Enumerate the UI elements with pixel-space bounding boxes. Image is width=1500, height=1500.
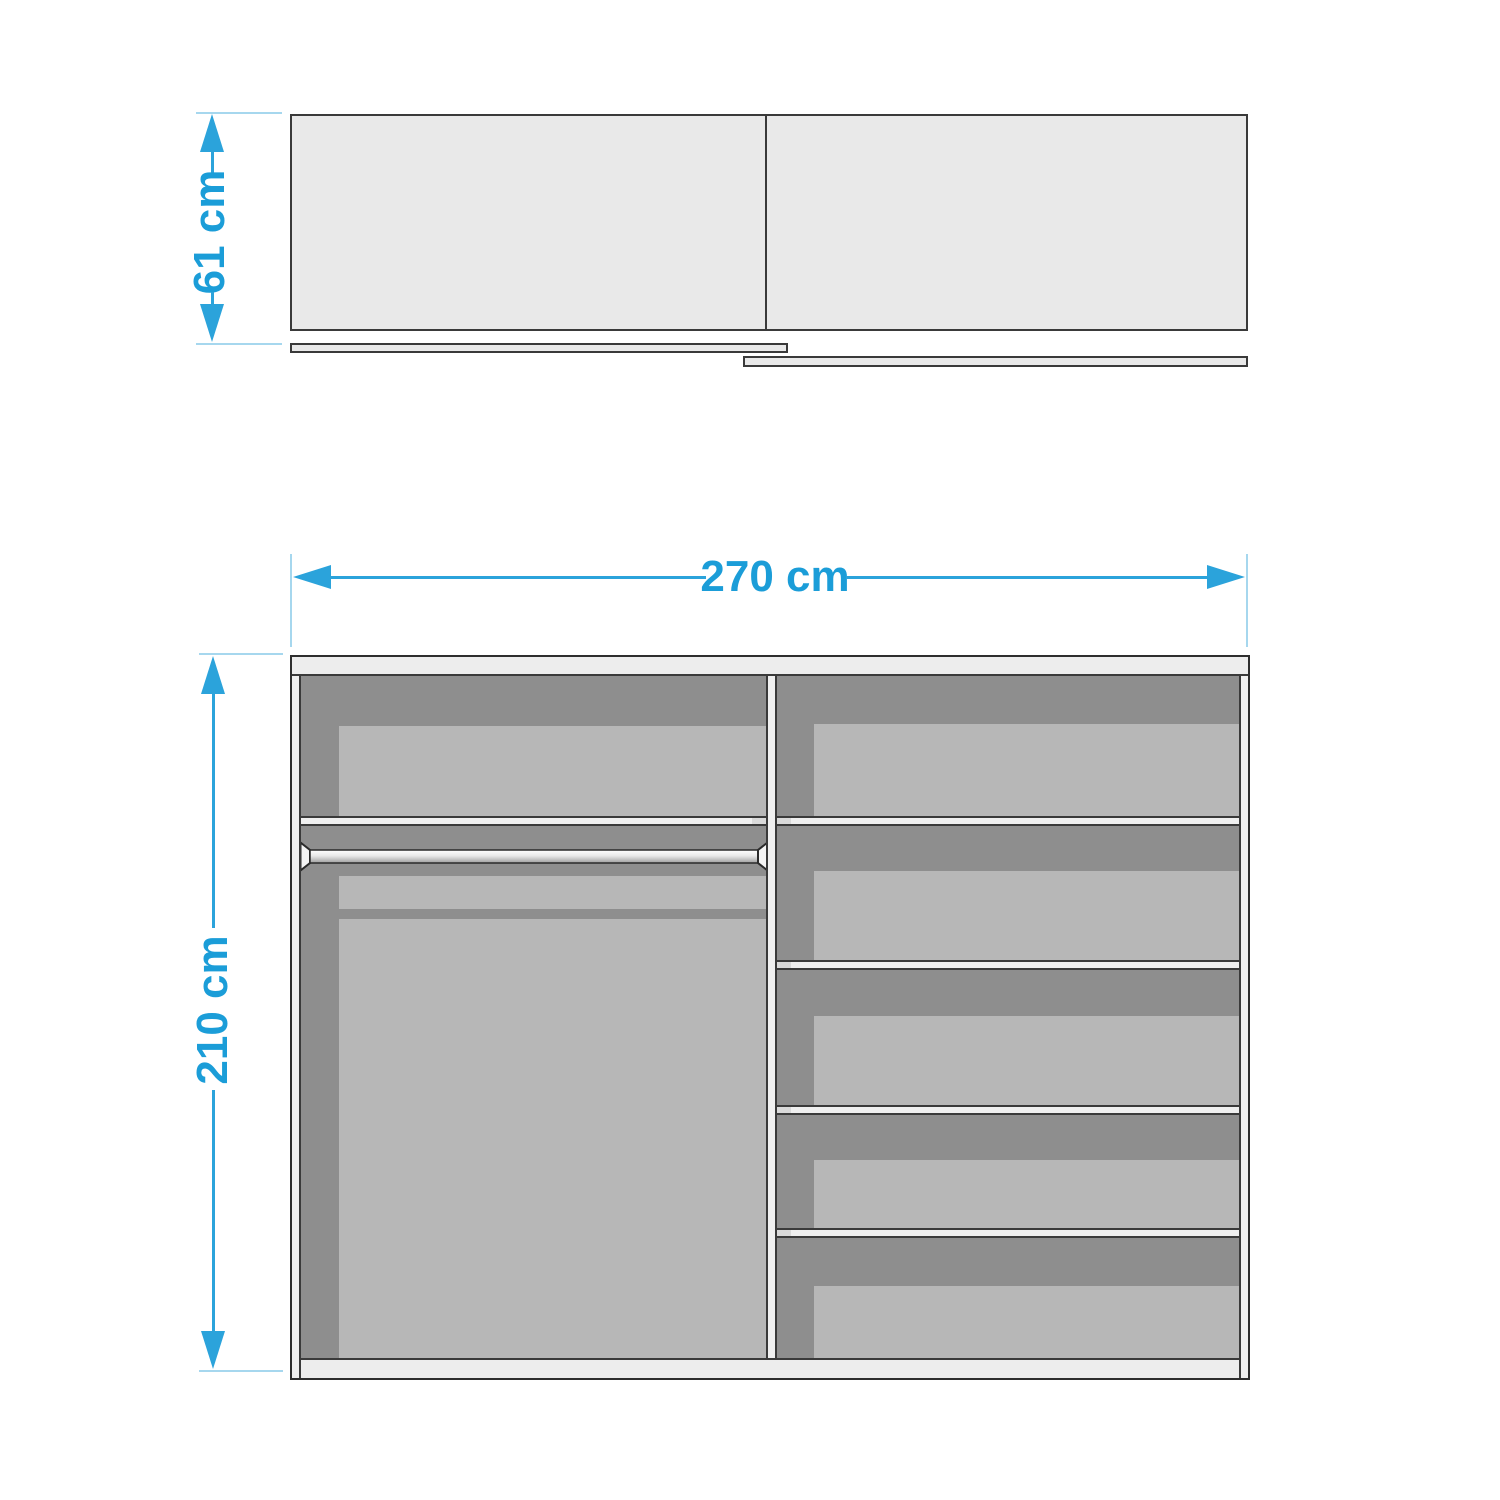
arrow-down-icon xyxy=(200,304,224,342)
width-dimension-label: 270 cm xyxy=(700,555,849,599)
shelf-end-cap xyxy=(752,818,766,824)
left-section-back-panel-main xyxy=(339,919,766,1358)
height-dimension-line-upper xyxy=(212,692,215,928)
width-dimension-line-left xyxy=(328,576,706,579)
right-compartment-4-back-panel xyxy=(814,1160,1239,1228)
height-tick-bottom xyxy=(199,1370,283,1372)
front-view-center-divider xyxy=(766,676,777,1358)
front-view-bottom-panel xyxy=(301,1358,1239,1378)
right-section-shelf-2 xyxy=(777,960,1239,970)
shelf-end-cap xyxy=(777,1107,791,1113)
width-tick-left xyxy=(290,554,292,647)
left-section-back-panel-mid xyxy=(339,876,766,909)
right-compartment-1-back-panel xyxy=(814,724,1239,816)
height-tick-top xyxy=(199,653,283,655)
height-dimension-line-lower xyxy=(212,1090,215,1333)
top-view-sliding-door-left xyxy=(290,343,788,353)
top-view-sliding-door-right xyxy=(743,356,1248,367)
shelf-end-cap xyxy=(777,1230,791,1236)
shelf-end-cap xyxy=(777,962,791,968)
wardrobe-dimension-diagram: 61 cm 270 cm 210 cm xyxy=(0,0,1500,1500)
right-compartment-5-back-panel xyxy=(814,1286,1239,1358)
front-view-right-wall xyxy=(1239,657,1248,1378)
top-view-center-divider xyxy=(765,116,767,329)
arrow-up-icon xyxy=(201,656,225,694)
width-dimension-line-right xyxy=(846,576,1210,579)
shelf-end-cap xyxy=(777,818,791,824)
depth-tick-bottom xyxy=(196,343,282,345)
arrow-left-icon xyxy=(293,565,331,589)
width-tick-right xyxy=(1246,554,1248,647)
arrow-down-icon xyxy=(201,1331,225,1369)
right-compartment-2-back-panel xyxy=(814,871,1239,960)
rail-end-cap-left xyxy=(301,843,311,871)
clothes-rail xyxy=(299,841,769,872)
rail-rod xyxy=(310,850,758,863)
top-view-cabinet-body xyxy=(290,114,1248,331)
right-section-shelf-4 xyxy=(777,1228,1239,1238)
arrow-up-icon xyxy=(200,114,224,152)
depth-dimension-label: 61 cm xyxy=(188,170,232,295)
left-section-shelf xyxy=(301,816,766,826)
front-view-top-panel xyxy=(292,657,1248,676)
right-section-shelf-1 xyxy=(777,816,1239,826)
right-section-shelf-3 xyxy=(777,1105,1239,1115)
left-section-back-panel-top xyxy=(339,726,766,816)
front-view-left-wall xyxy=(292,657,301,1378)
arrow-right-icon xyxy=(1207,565,1245,589)
height-dimension-label: 210 cm xyxy=(191,935,235,1084)
right-compartment-3-back-panel xyxy=(814,1016,1239,1105)
